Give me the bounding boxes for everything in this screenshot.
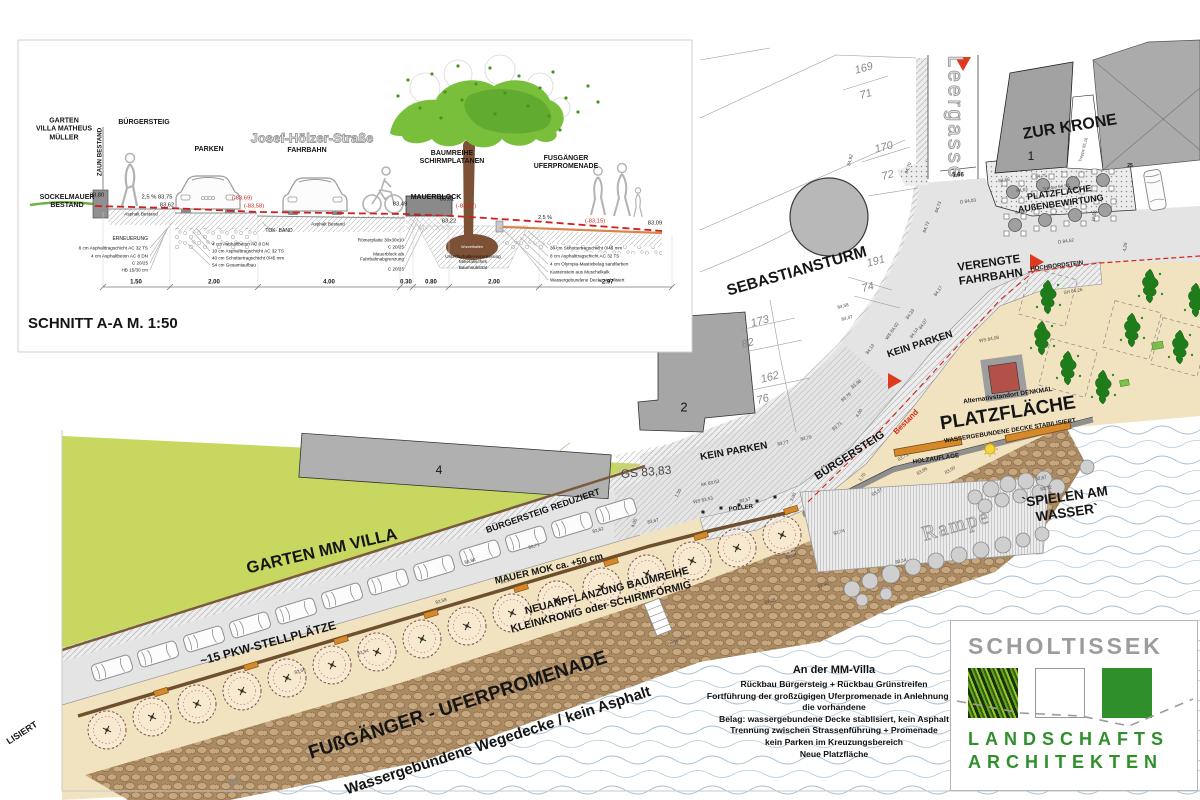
firm-logo: SCHOLTISSEK LANDSCHAFTS ARCHITEKTEN bbox=[950, 620, 1198, 791]
sockelmauer-block bbox=[93, 190, 108, 218]
logo-dash-line bbox=[951, 621, 1199, 792]
section-title: SCHNITT A-A M. 1:50 bbox=[28, 315, 178, 333]
mauerblock-block bbox=[406, 196, 452, 216]
section-panel-bg bbox=[18, 40, 692, 352]
drawing-sheet: { "section": { "title": "SCHNITT A-A M. … bbox=[0, 0, 1200, 800]
kantenstein bbox=[496, 221, 503, 232]
